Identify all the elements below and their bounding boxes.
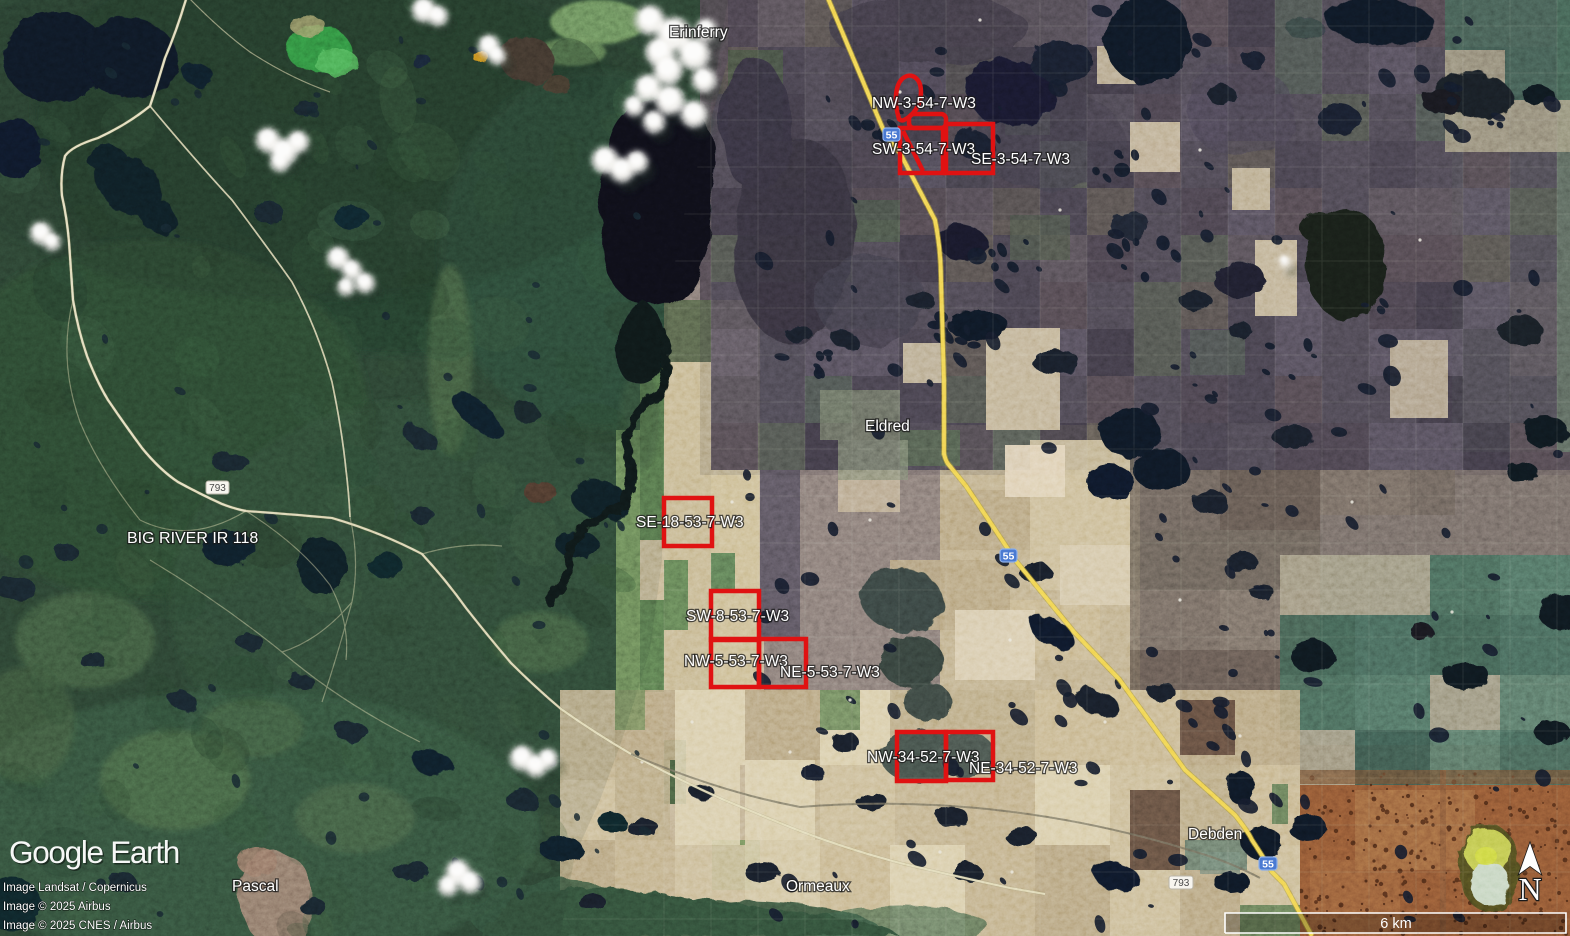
svg-text:Google Earth: Google Earth [9, 834, 179, 870]
svg-text:Ormeaux: Ormeaux [786, 878, 850, 895]
svg-text:Eldred: Eldred [865, 418, 910, 435]
svg-text:Pascal: Pascal [232, 878, 279, 895]
svg-text:SE-18-53-7-W3: SE-18-53-7-W3 [636, 514, 744, 531]
svg-text:55: 55 [1262, 858, 1274, 870]
svg-text:Image © 2025 CNES / Airbus: Image © 2025 CNES / Airbus [3, 920, 152, 932]
svg-text:NW-34-52-7-W3: NW-34-52-7-W3 [867, 749, 980, 766]
svg-text:NW-3-54-7-W3: NW-3-54-7-W3 [872, 95, 976, 112]
svg-text:Image © 2025 Airbus: Image © 2025 Airbus [3, 901, 111, 913]
svg-text:NE-5-53-7-W3: NE-5-53-7-W3 [780, 664, 880, 681]
svg-text:SW-3-54-7-W3: SW-3-54-7-W3 [872, 141, 975, 158]
svg-text:N: N [1518, 871, 1541, 907]
svg-text:Erinferry: Erinferry [669, 24, 728, 41]
svg-text:6 km: 6 km [1380, 916, 1411, 932]
svg-text:Debden: Debden [1188, 826, 1242, 843]
svg-text:793: 793 [1173, 878, 1190, 889]
svg-text:SW-8-53-7-W3: SW-8-53-7-W3 [686, 608, 789, 625]
svg-text:Image Landsat / Copernicus: Image Landsat / Copernicus [3, 882, 147, 894]
svg-text:793: 793 [209, 483, 226, 494]
svg-text:55: 55 [1003, 550, 1015, 562]
svg-text:BIG RIVER IR 118: BIG RIVER IR 118 [127, 530, 258, 547]
svg-text:55: 55 [886, 129, 898, 141]
svg-text:SE-3-54-7-W3: SE-3-54-7-W3 [971, 151, 1070, 168]
svg-text:NW-5-53-7-W3: NW-5-53-7-W3 [684, 653, 788, 670]
svg-text:NE-34-52-7-W3: NE-34-52-7-W3 [969, 760, 1078, 777]
